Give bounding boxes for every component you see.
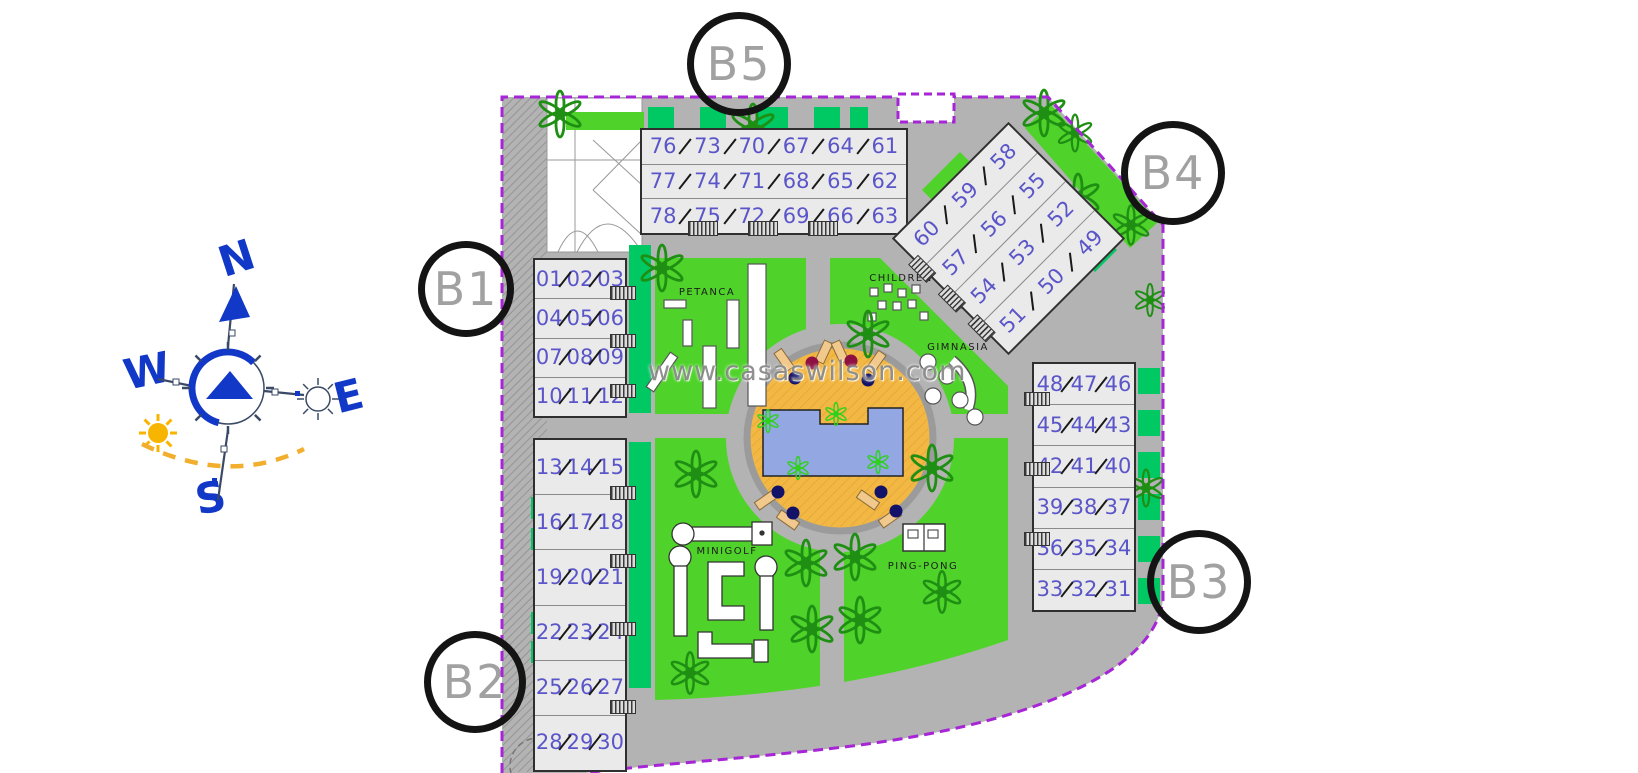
unit-number: 40 (1105, 456, 1132, 477)
unit-number: 69 (783, 206, 810, 227)
unit-divider (1040, 224, 1044, 243)
unit-number: 54 (967, 274, 1001, 308)
unit-number: 31 (1105, 579, 1132, 600)
block-circle-b2: B2 (424, 631, 526, 733)
block-circle-b3: B3 (1147, 530, 1251, 634)
stairs-icon (808, 221, 838, 236)
unit-divider (679, 139, 692, 155)
block-circle-b1: B1 (418, 241, 514, 337)
block-label: B1 (434, 262, 499, 316)
unit-divider (856, 208, 869, 224)
stairs-icon (1024, 392, 1050, 406)
block-label: B4 (1141, 146, 1206, 200)
unit-number: 46 (1105, 374, 1132, 395)
unit-row: 767370676461 (642, 130, 906, 165)
unit-number: 61 (872, 136, 899, 157)
unit-divider (679, 173, 692, 189)
block-label: B5 (707, 37, 772, 91)
unit-number: 53 (1006, 236, 1040, 270)
compass-rose: N W E S (119, 229, 368, 524)
block-label: B3 (1167, 555, 1232, 609)
block-circle-b4: B4 (1121, 121, 1225, 225)
stairs-icon (1024, 532, 1050, 546)
unit-divider (812, 173, 825, 189)
block-label: B2 (443, 655, 508, 709)
unit-divider (723, 208, 736, 224)
unit-number: 51 (996, 303, 1030, 337)
unit-number: 57 (939, 246, 973, 280)
unit-number: 41 (1071, 456, 1098, 477)
unit-number: 52 (1044, 197, 1078, 231)
site-plan: PETANCA CHILDREN GIMNASIA MINIGOLF PING-… (0, 0, 1638, 773)
unit-number: 77 (650, 171, 677, 192)
unit-number: 59 (949, 179, 983, 213)
compass-north-label: N (212, 229, 261, 286)
unit-number: 56 (977, 207, 1011, 241)
unit-number: 74 (694, 171, 721, 192)
unit-number: 50 (1035, 265, 1069, 299)
stairs-icon (610, 384, 636, 398)
unit-number: 28 (536, 732, 563, 753)
sun-wheel-icon (297, 378, 339, 420)
watermark: www.casaswilson.com (648, 356, 928, 387)
unit-divider (856, 173, 869, 189)
unit-number: 68 (783, 171, 810, 192)
unit-divider (723, 173, 736, 189)
unit-row: 454443 (1034, 405, 1134, 446)
unit-number: 35 (1071, 538, 1098, 559)
unit-divider (812, 139, 825, 155)
ping-pong-table (903, 524, 945, 551)
unit-number: 47 (1071, 374, 1098, 395)
unit-number: 71 (738, 171, 765, 192)
unit-number: 44 (1071, 415, 1098, 436)
unit-divider (1011, 195, 1015, 214)
unit-divider (767, 139, 780, 155)
boundary-dashed-rect (898, 94, 954, 122)
stairs-icon (610, 700, 636, 714)
unit-divider (973, 234, 977, 253)
minigolf-label: MINIGOLF (697, 546, 758, 557)
unit-divider (944, 205, 948, 224)
stairs-icon (610, 554, 636, 568)
unit-number: 63 (872, 206, 899, 227)
building-b5: 767370676461777471686562787572696663 (640, 128, 908, 235)
unit-divider (723, 139, 736, 155)
gimnasia-label: GIMNASIA (927, 342, 989, 353)
unit-number: 39 (1037, 497, 1064, 518)
stairs-icon (1024, 462, 1050, 476)
unit-divider (983, 167, 987, 186)
unit-row: 777471686562 (642, 165, 906, 200)
unit-number: 65 (827, 171, 854, 192)
ping-pong-label: PING-PONG (888, 561, 958, 572)
unit-number: 33 (1037, 579, 1064, 600)
unit-divider (1030, 291, 1034, 310)
unit-number: 32 (1071, 579, 1098, 600)
unit-row: 040506 (535, 299, 625, 338)
unit-number: 64 (827, 136, 854, 157)
unit-number: 55 (1016, 169, 1050, 203)
compass-west-label: W (119, 342, 175, 400)
compass-south-label: S (191, 471, 229, 525)
stairs-icon (610, 334, 636, 348)
unit-number: 34 (1105, 538, 1132, 559)
unit-number: 60 (910, 217, 944, 251)
compass-north-arrow (219, 286, 250, 322)
stairs-icon (610, 622, 636, 636)
stairs-icon (610, 486, 636, 500)
unit-number: 70 (738, 136, 765, 157)
unit-number: 62 (872, 171, 899, 192)
stairs-icon (610, 286, 636, 300)
unit-number: 49 (1073, 226, 1107, 260)
block-circle-b5: B5 (687, 12, 791, 116)
stairs-icon (688, 221, 718, 236)
unit-number: 76 (650, 136, 677, 157)
stairs-icon (748, 221, 778, 236)
unit-number: 78 (650, 206, 677, 227)
unit-number: 67 (783, 136, 810, 157)
unit-number: 58 (987, 140, 1021, 174)
unit-number: 45 (1037, 415, 1064, 436)
unit-number: 38 (1071, 497, 1098, 518)
unit-row: 333231 (1034, 570, 1134, 610)
unit-row: 161718 (535, 495, 625, 550)
unit-row: 282930 (535, 716, 625, 770)
petanca-label: PETANCA (679, 287, 735, 298)
unit-divider (856, 139, 869, 155)
unit-number: 43 (1105, 415, 1132, 436)
compass-east-label: E (329, 369, 369, 423)
unit-row: 393837 (1034, 488, 1134, 529)
unit-divider (1068, 253, 1072, 272)
unit-number: 73 (694, 136, 721, 157)
unit-divider (1001, 262, 1005, 281)
unit-divider (767, 173, 780, 189)
unit-number: 37 (1105, 497, 1132, 518)
